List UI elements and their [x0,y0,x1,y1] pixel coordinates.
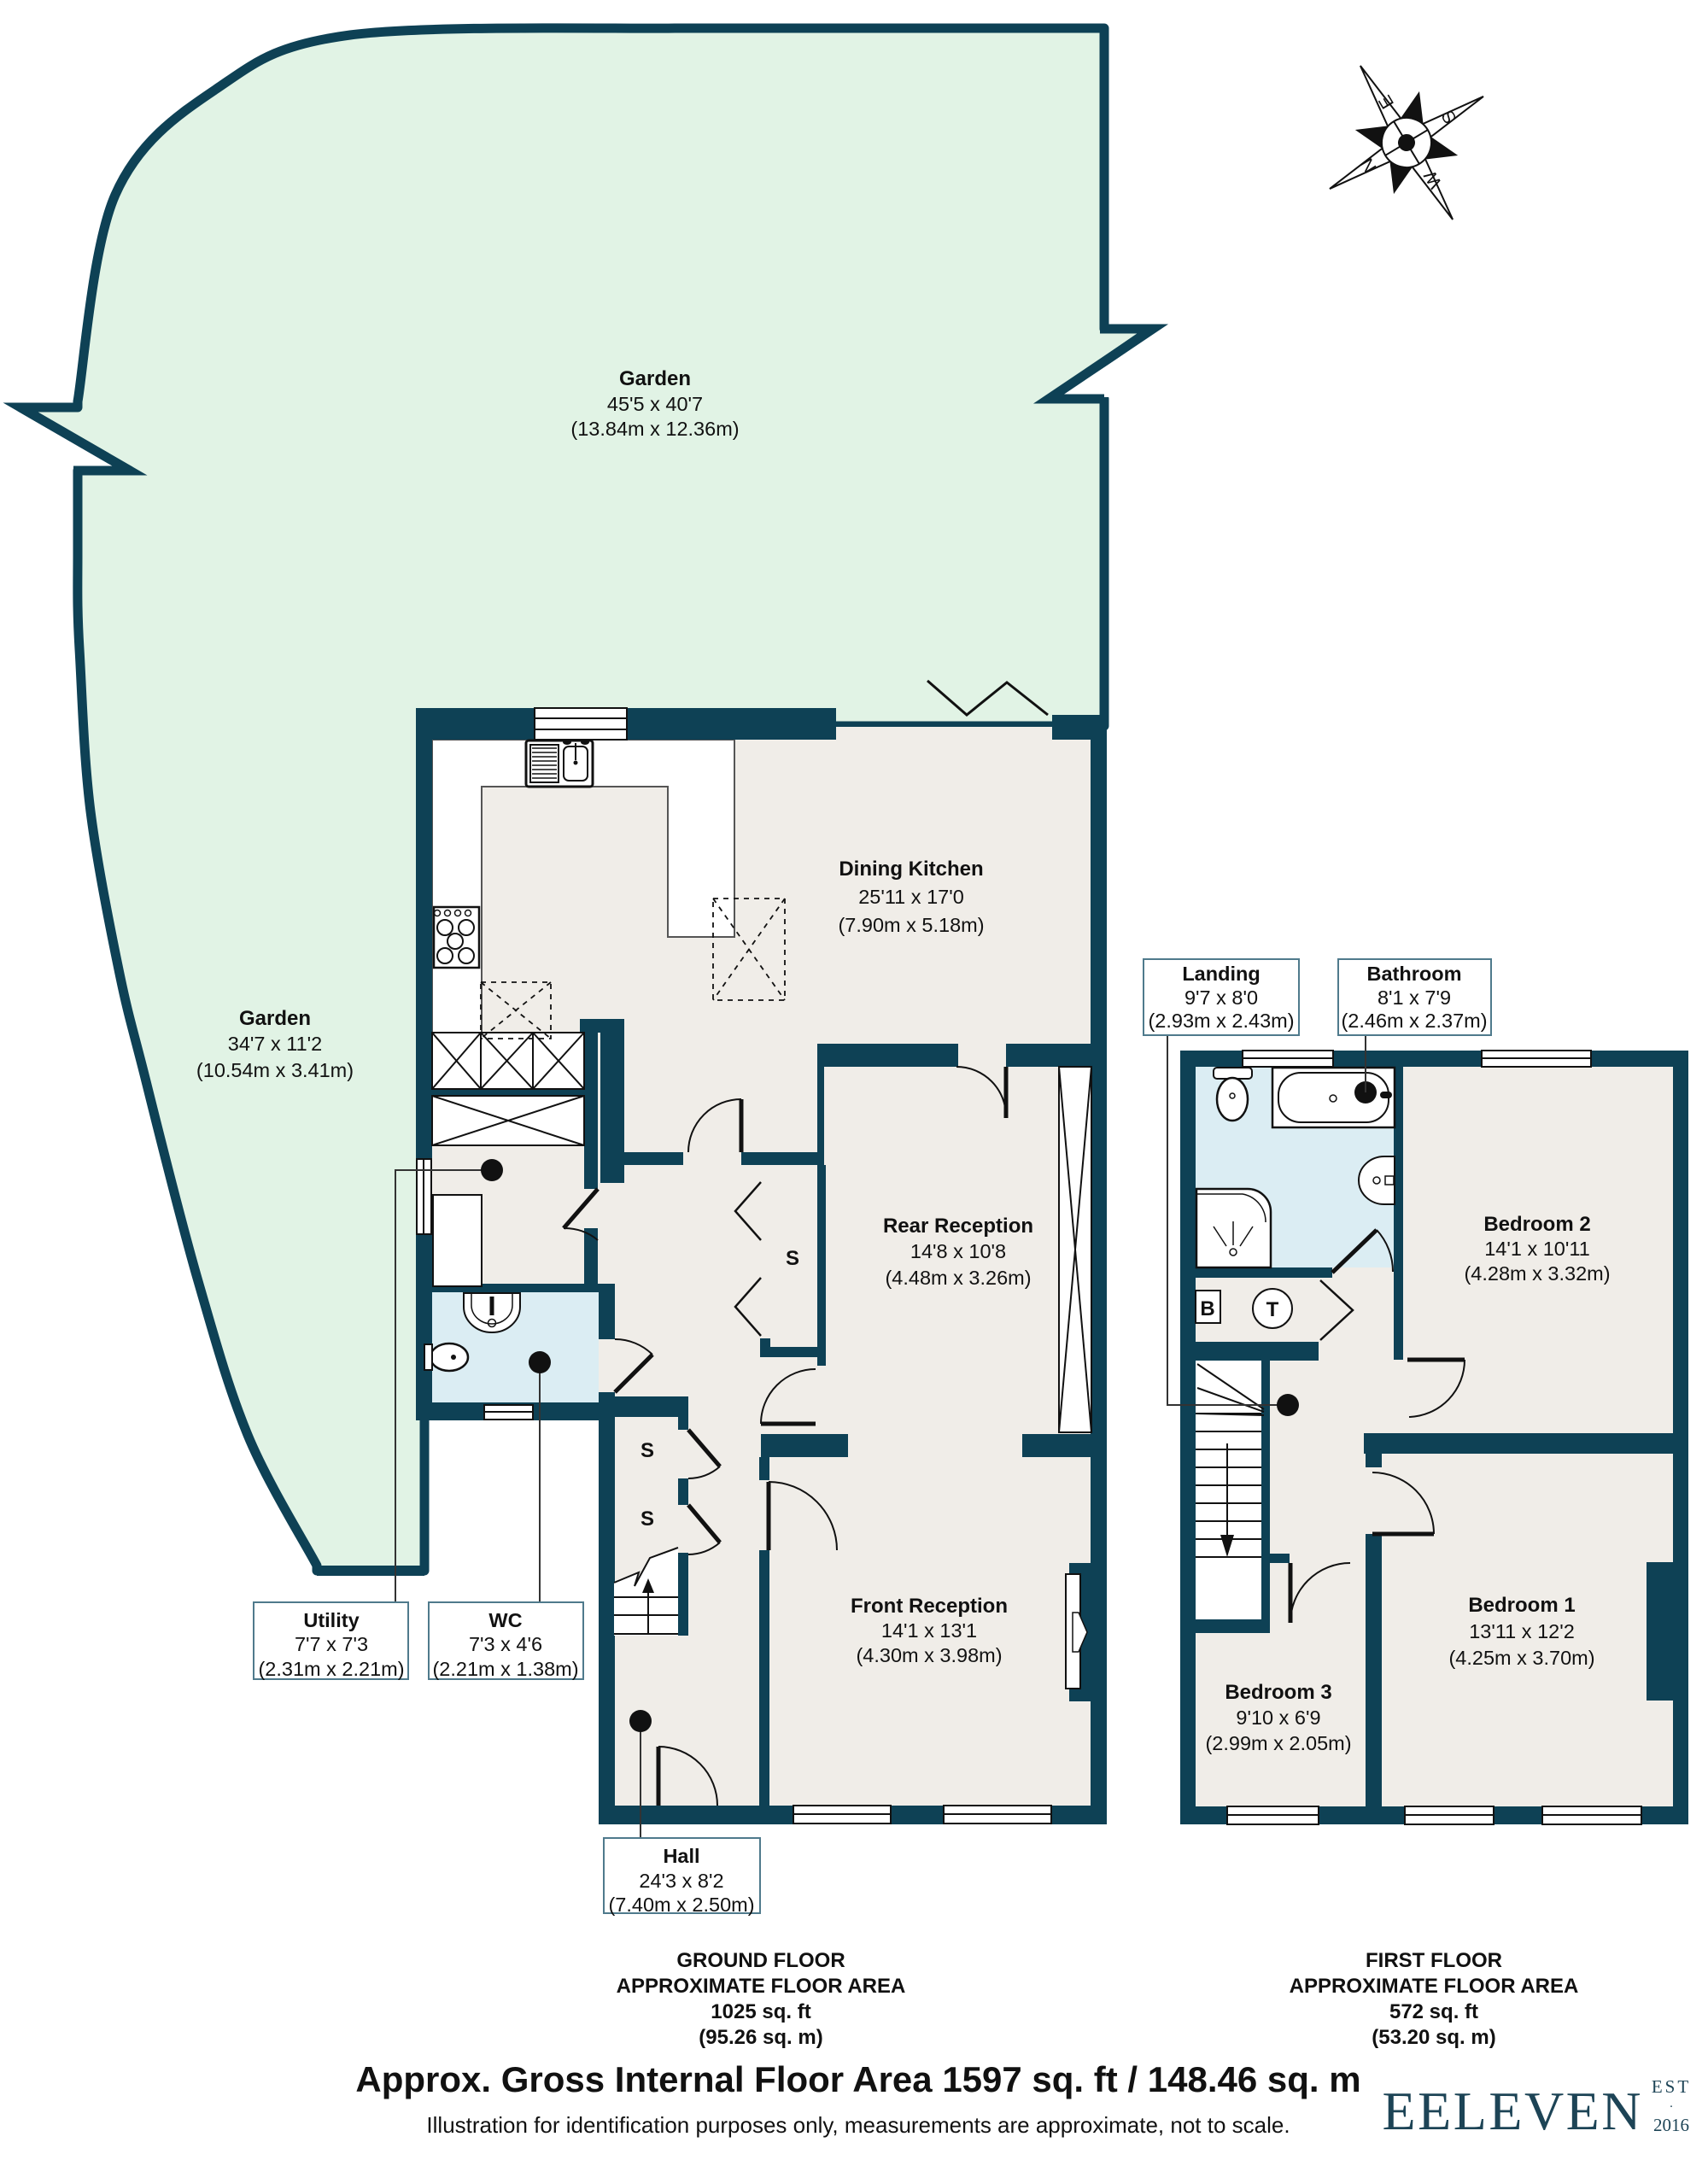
svg-text:(53.20 sq. m): (53.20 sq. m) [1372,2026,1495,2049]
svg-text:S: S [640,1507,654,1531]
svg-text:13'11 x 12'2: 13'11 x 12'2 [1469,1620,1575,1642]
svg-text:GROUND FLOOR: GROUND FLOOR [676,1949,845,1972]
svg-text:S: S [786,1247,799,1270]
svg-text:(7.40m x 2.50m): (7.40m x 2.50m) [608,1894,754,1916]
svg-text:Front Reception: Front Reception [851,1595,1008,1618]
svg-text:(2.46m x 2.37m): (2.46m x 2.37m) [1341,1010,1487,1032]
svg-text:14'1 x 13'1: 14'1 x 13'1 [881,1619,977,1642]
svg-text:14'8 x 10'8: 14'8 x 10'8 [910,1240,1006,1262]
svg-text:Illustration for identificatio: Illustration for identification purposes… [426,2112,1290,2138]
svg-text:(2.99m x 2.05m): (2.99m x 2.05m) [1205,1732,1351,1754]
svg-text:9'10 x 6'9: 9'10 x 6'9 [1236,1706,1320,1729]
svg-text:Bedroom 2: Bedroom 2 [1483,1213,1590,1236]
svg-text:(10.54m x 3.41m): (10.54m x 3.41m) [196,1059,354,1081]
svg-text:B: B [1200,1297,1214,1320]
svg-text:(95.26 sq. m): (95.26 sq. m) [699,2026,822,2049]
svg-text:Utility: Utility [303,1609,359,1631]
svg-text:T: T [1266,1298,1279,1321]
svg-text:1025 sq. ft: 1025 sq. ft [711,2000,810,2023]
svg-text:APPROXIMATE FLOOR AREA: APPROXIMATE FLOOR AREA [617,1975,906,1998]
svg-text:S: S [640,1439,654,1462]
svg-text:14'1 x 10'11: 14'1 x 10'11 [1484,1238,1590,1260]
svg-text:(4.28m x 3.32m): (4.28m x 3.32m) [1464,1262,1610,1285]
svg-text:24'3 x 8'2: 24'3 x 8'2 [639,1870,723,1892]
svg-text:(4.30m x 3.98m): (4.30m x 3.98m) [856,1644,1002,1666]
svg-text:9'7 x 8'0: 9'7 x 8'0 [1184,986,1258,1009]
svg-text:Bedroom 3: Bedroom 3 [1225,1681,1331,1704]
svg-text:WC: WC [488,1609,522,1631]
svg-text:Bathroom: Bathroom [1367,963,1462,985]
svg-text:(13.84m x 12.36m): (13.84m x 12.36m) [570,418,739,440]
svg-text:(2.31m x 2.21m): (2.31m x 2.21m) [258,1658,404,1680]
svg-text:Hall: Hall [663,1845,699,1867]
svg-text:Bedroom 1: Bedroom 1 [1468,1594,1575,1617]
svg-text:8'1 x 7'9: 8'1 x 7'9 [1378,986,1451,1009]
svg-text:Approx. Gross Internal Floor A: Approx. Gross Internal Floor Area 1597 s… [355,2059,1360,2099]
svg-text:(2.93m x 2.43m): (2.93m x 2.43m) [1148,1010,1294,1032]
svg-text:(4.48m x 3.26m): (4.48m x 3.26m) [885,1267,1031,1289]
svg-text:Garden: Garden [619,367,691,390]
svg-text:7'7 x 7'3: 7'7 x 7'3 [295,1633,368,1655]
svg-text:Landing: Landing [1182,963,1260,985]
svg-text:(4.25m x 3.70m): (4.25m x 3.70m) [1448,1647,1594,1669]
svg-text:FIRST FLOOR: FIRST FLOOR [1366,1949,1502,1972]
svg-text:(2.21m x 1.38m): (2.21m x 1.38m) [432,1658,578,1680]
svg-text:7'3 x 4'6: 7'3 x 4'6 [469,1633,542,1655]
svg-text:Rear Reception: Rear Reception [883,1215,1033,1238]
svg-text:45'5 x 40'7: 45'5 x 40'7 [607,393,703,415]
svg-text:25'11 x 17'0: 25'11 x 17'0 [858,886,964,908]
svg-text:572 sq. ft: 572 sq. ft [1389,2000,1478,2023]
svg-text:EST: EST [1652,2076,1691,2097]
svg-text:Dining Kitchen: Dining Kitchen [839,858,983,881]
svg-text:APPROXIMATE FLOOR AREA: APPROXIMATE FLOOR AREA [1290,1975,1579,1998]
svg-text:·: · [1670,2100,1674,2114]
svg-text:34'7 x 11'2: 34'7 x 11'2 [228,1033,322,1055]
svg-text:2016: 2016 [1653,2115,1689,2135]
svg-text:(7.90m x 5.18m): (7.90m x 5.18m) [838,914,984,936]
svg-text:EELEVEN: EELEVEN [1383,2081,1641,2141]
svg-text:Garden: Garden [239,1007,311,1030]
